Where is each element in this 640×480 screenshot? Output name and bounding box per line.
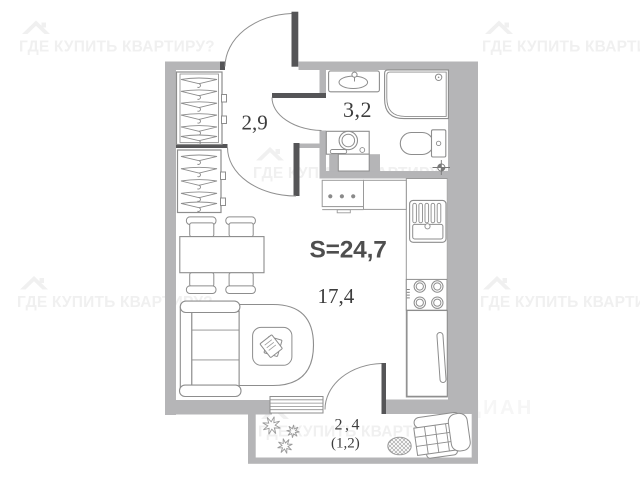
svg-text:(1,2): (1,2)	[331, 436, 360, 452]
svg-text:ГДЕ КУПИТЬ КВАРТИРУ?: ГДЕ КУПИТЬ КВАРТИРУ?	[19, 39, 215, 56]
svg-text:ГДЕ КУПИТЬ КВАРТИРУ?: ГДЕ КУПИТЬ КВАРТИРУ?	[480, 294, 640, 311]
svg-text:S=24,7: S=24,7	[310, 237, 387, 264]
svg-text:ГДЕ КУПИТЬ КВАРТИРУ?: ГДЕ КУПИТЬ КВАРТИРУ?	[482, 39, 640, 56]
svg-text:3,2: 3,2	[343, 97, 372, 122]
svg-text:17,4: 17,4	[318, 284, 355, 308]
svg-text:2,4: 2,4	[335, 417, 363, 434]
svg-text:2,9: 2,9	[242, 111, 268, 135]
